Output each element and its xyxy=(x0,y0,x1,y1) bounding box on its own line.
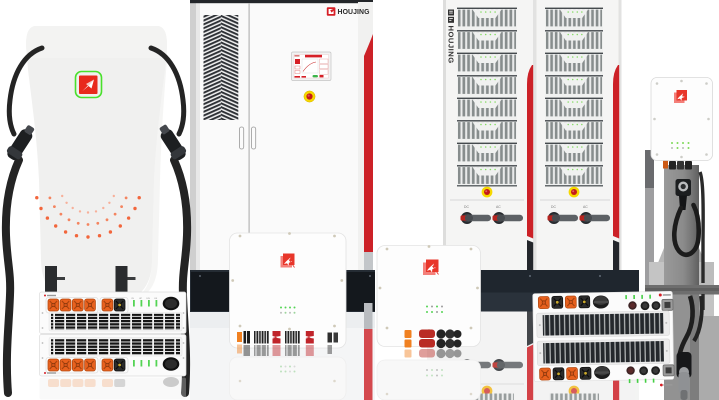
svg-text:AC: AC xyxy=(496,205,501,209)
svg-text:HOUJING: HOUJING xyxy=(338,9,370,16)
svg-text:AC: AC xyxy=(583,205,588,209)
svg-text:OK: OK xyxy=(154,298,158,300)
svg-text:HOUJING: HOUJING xyxy=(446,26,455,64)
svg-text:UP: UP xyxy=(139,298,143,300)
svg-text:DN: DN xyxy=(147,298,151,300)
svg-text:DC: DC xyxy=(551,205,556,209)
svg-text:DC: DC xyxy=(464,205,469,209)
